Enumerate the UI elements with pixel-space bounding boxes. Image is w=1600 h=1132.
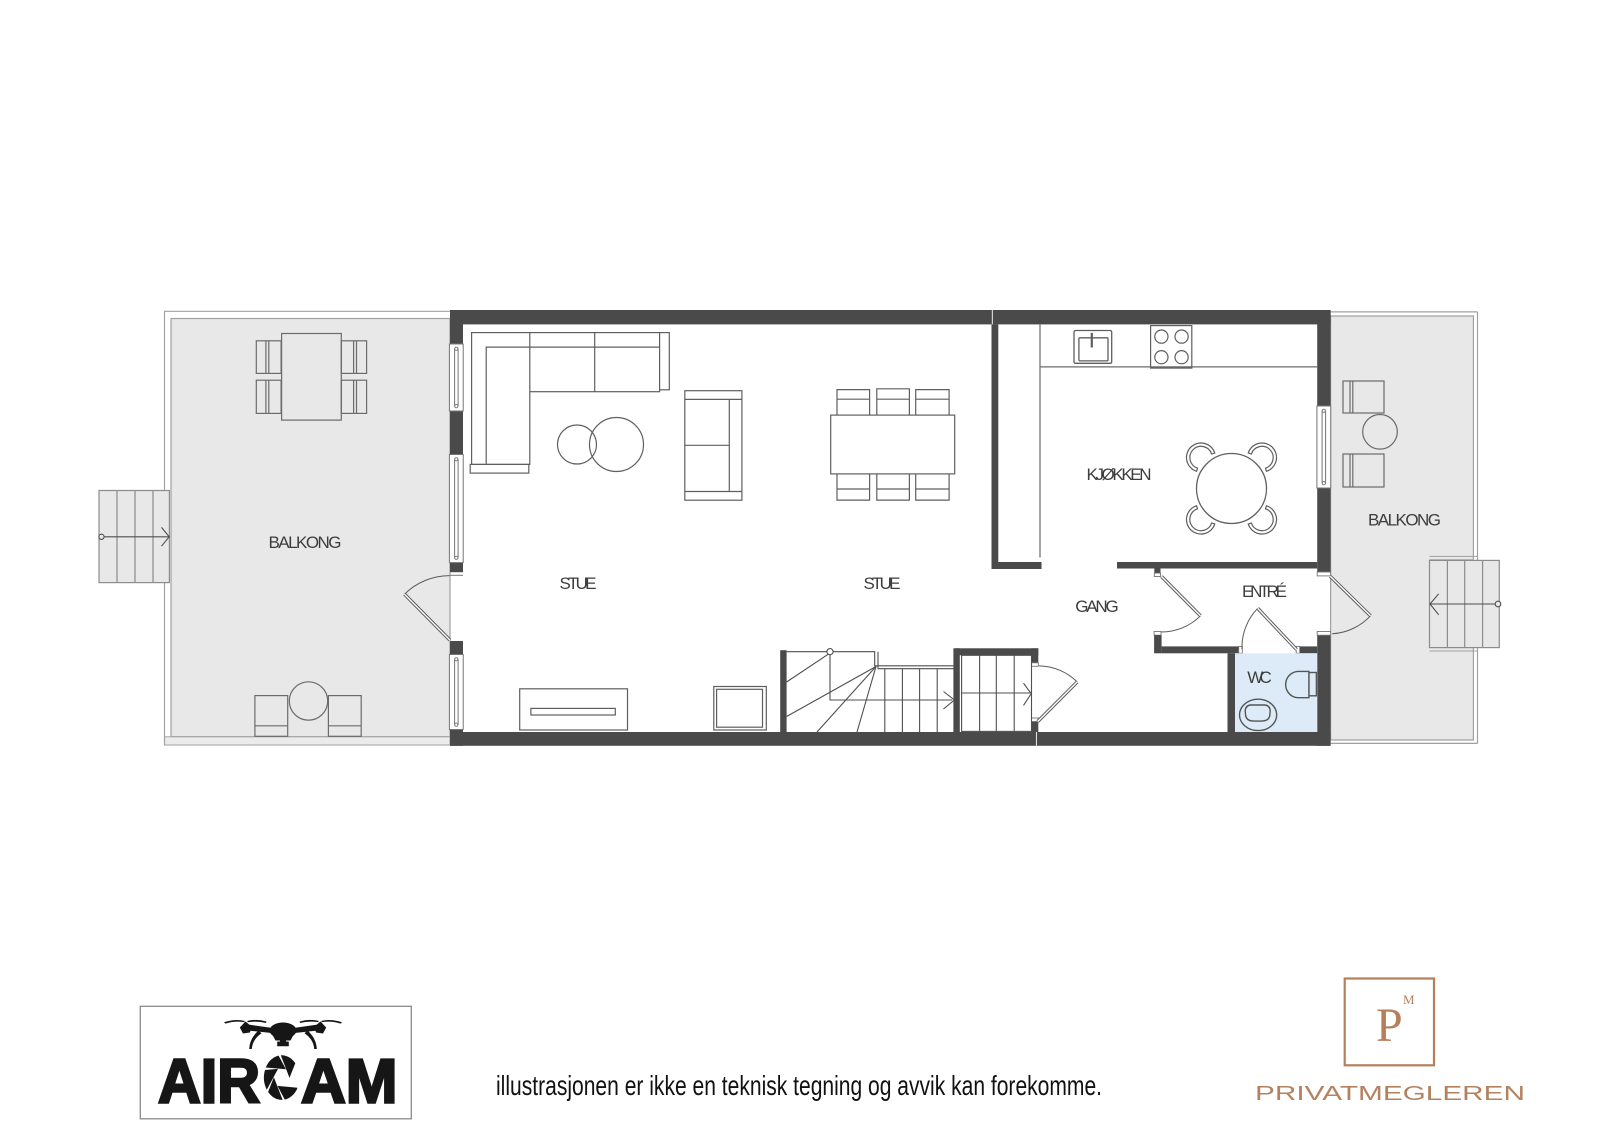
svg-text:WC: WC [1247, 668, 1272, 687]
svg-text:STUE: STUE [864, 574, 901, 593]
svg-text:AM: AM [301, 1048, 398, 1117]
svg-text:ENTRÉ: ENTRÉ [1242, 582, 1287, 601]
svg-text:GANG: GANG [1075, 597, 1119, 616]
svg-text:AIR: AIR [158, 1048, 260, 1117]
svg-text:STUE: STUE [560, 574, 597, 593]
svg-text:BALKONG: BALKONG [269, 533, 342, 552]
svg-text:M: M [1403, 992, 1415, 1007]
svg-text:BALKONG: BALKONG [1368, 511, 1441, 530]
svg-text:PRIVATMEGLEREN: PRIVATMEGLEREN [1255, 1083, 1525, 1105]
svg-text:illustrasjonen er ikke en tekn: illustrasjonen er ikke en teknisk tegnin… [496, 1070, 1102, 1101]
svg-text:KJØKKEN: KJØKKEN [1087, 465, 1152, 484]
svg-text:P: P [1376, 999, 1403, 1052]
